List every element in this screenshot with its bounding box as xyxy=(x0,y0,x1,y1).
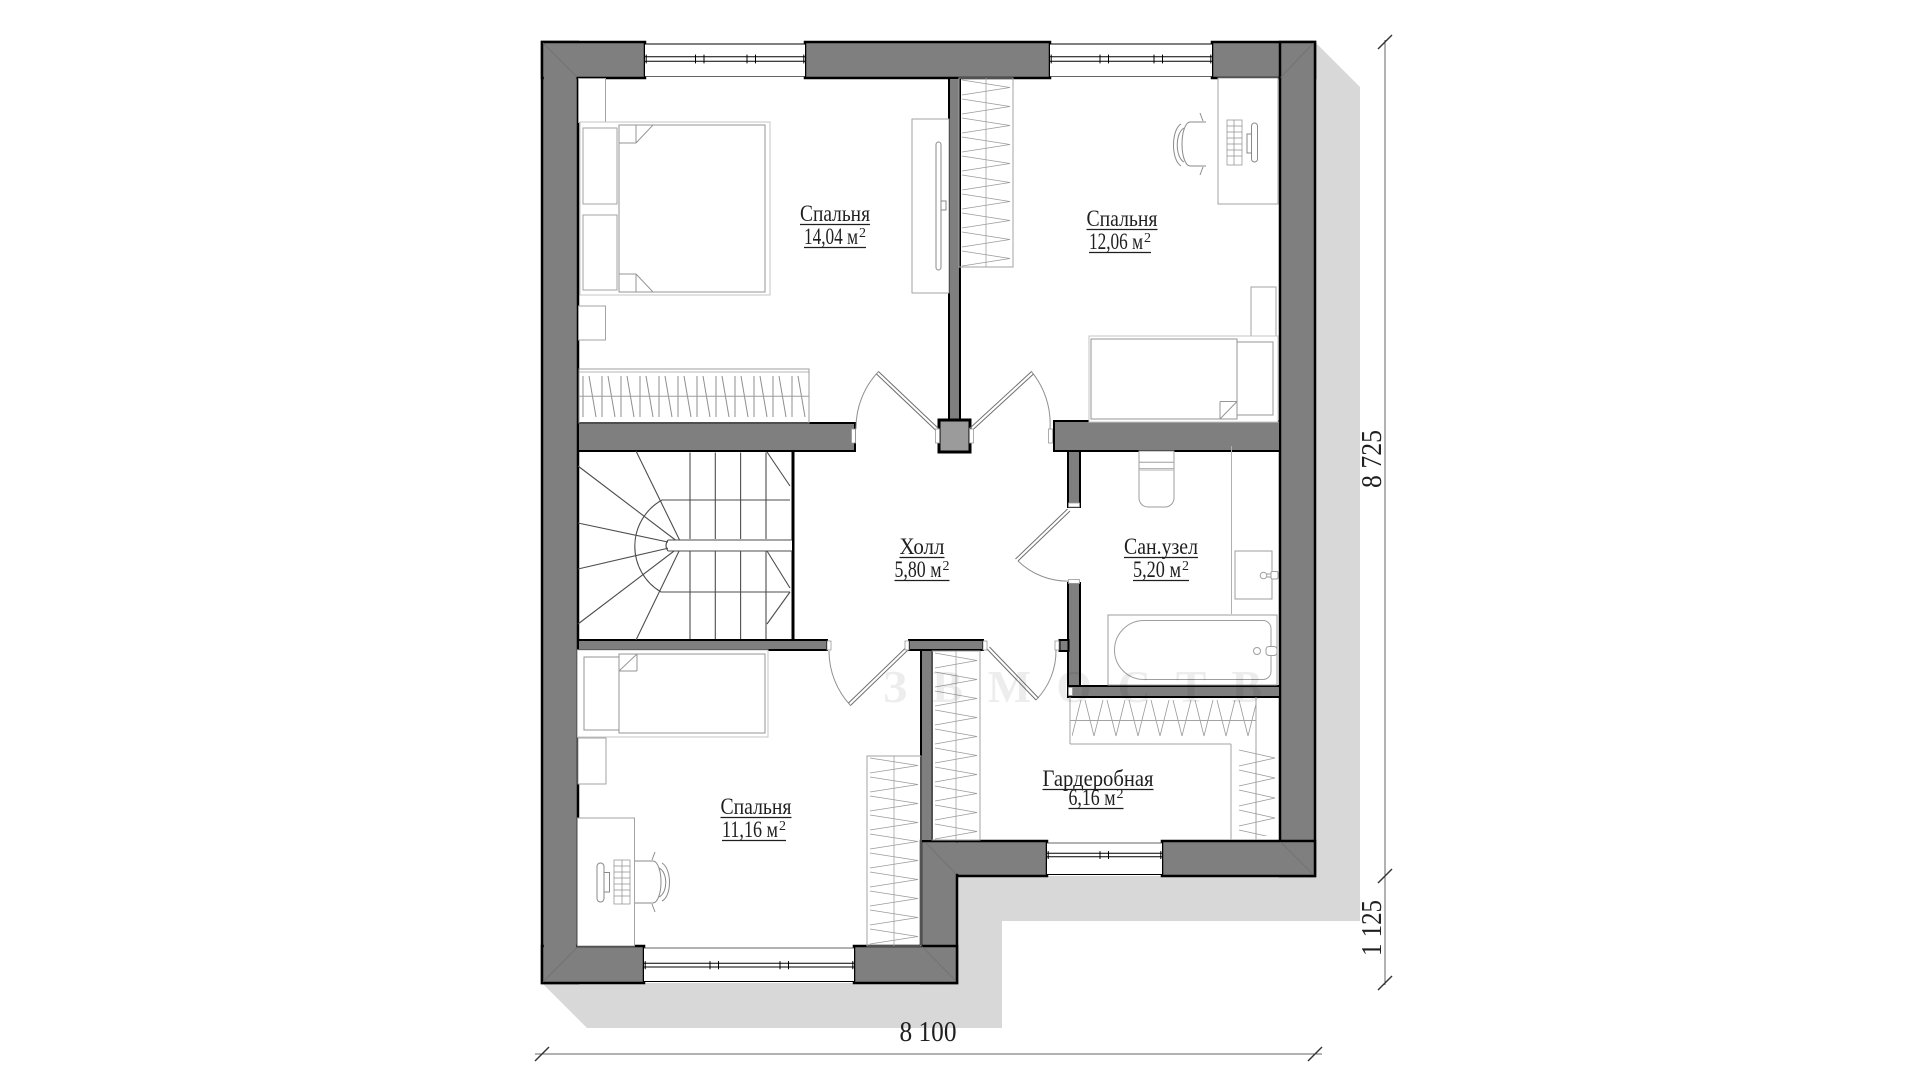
svg-text:2: 2 xyxy=(1182,559,1189,574)
svg-text:2: 2 xyxy=(859,226,866,241)
svg-text:12,06 м: 12,06 м xyxy=(1089,229,1143,254)
svg-text:Спальня: Спальня xyxy=(1087,206,1158,231)
svg-text:5,80 м: 5,80 м xyxy=(895,557,942,582)
svg-text:2: 2 xyxy=(779,819,786,834)
svg-text:2: 2 xyxy=(1144,231,1151,246)
svg-text:2: 2 xyxy=(943,559,950,574)
svg-text:1 125: 1 125 xyxy=(1357,900,1388,956)
svg-text:14,04 м: 14,04 м xyxy=(804,224,858,249)
svg-text:11,16 м: 11,16 м xyxy=(722,817,778,842)
svg-text:8 725: 8 725 xyxy=(1357,430,1388,488)
svg-text:2: 2 xyxy=(1117,787,1124,802)
svg-text:Спальня: Спальня xyxy=(800,201,870,226)
svg-text:ЗВМОСТВ: ЗВМОСТВ xyxy=(883,661,1287,712)
svg-text:8 100: 8 100 xyxy=(900,1017,957,1048)
svg-text:Холл: Холл xyxy=(900,534,945,559)
svg-text:5,20 м: 5,20 м xyxy=(1133,557,1181,582)
svg-text:Спальня: Спальня xyxy=(721,794,792,819)
svg-text:6,16 м: 6,16 м xyxy=(1069,785,1116,810)
svg-text:Сан.узел: Сан.узел xyxy=(1124,534,1198,559)
